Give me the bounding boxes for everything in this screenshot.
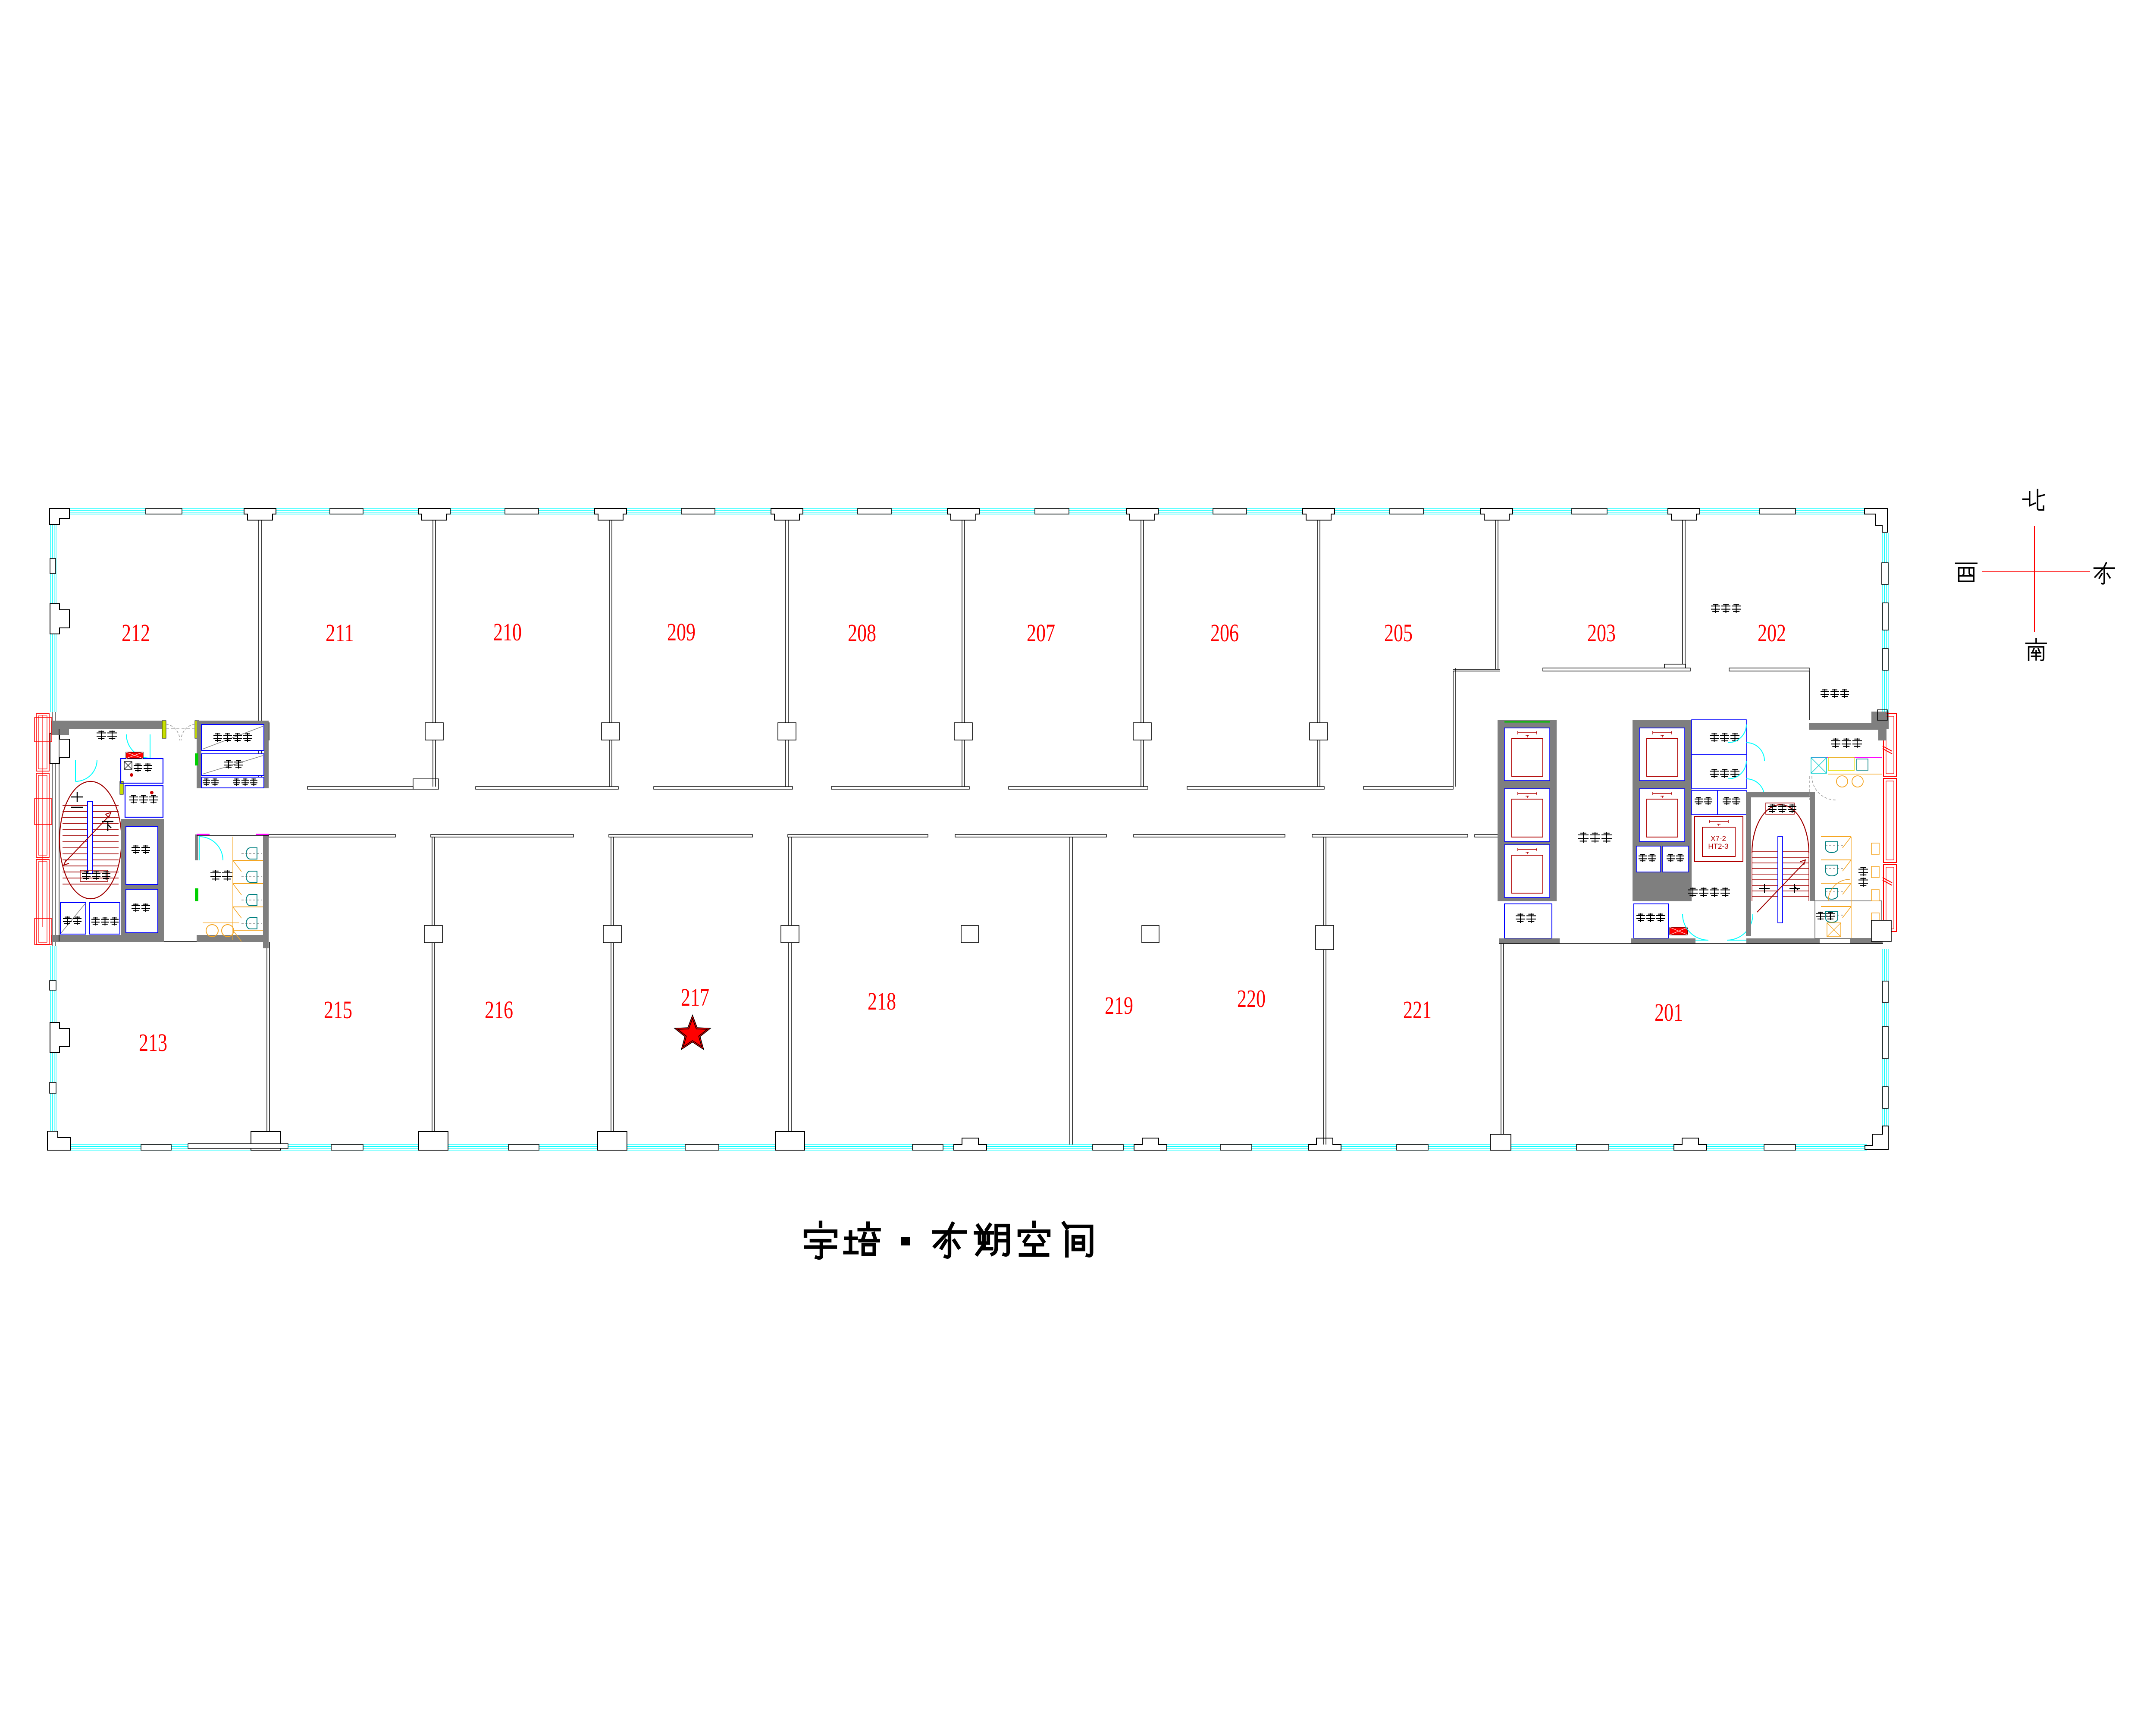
- svg-text:206: 206: [1210, 619, 1239, 647]
- svg-text:215: 215: [324, 996, 352, 1024]
- svg-text:211: 211: [326, 619, 354, 647]
- svg-text:219: 219: [1105, 991, 1133, 1019]
- svg-text:HT2-3: HT2-3: [1708, 842, 1728, 850]
- svg-text:207: 207: [1027, 619, 1055, 647]
- svg-text:213: 213: [139, 1029, 167, 1057]
- svg-text:210: 210: [493, 618, 522, 646]
- svg-text:201: 201: [1655, 998, 1683, 1026]
- svg-text:203: 203: [1587, 619, 1616, 647]
- svg-text:208: 208: [848, 619, 876, 647]
- svg-text:218: 218: [868, 987, 896, 1015]
- svg-text:209: 209: [667, 618, 696, 646]
- svg-text:X7-2: X7-2: [1711, 834, 1726, 843]
- svg-text:220: 220: [1237, 985, 1266, 1013]
- svg-text:202: 202: [1758, 619, 1786, 647]
- svg-text:221: 221: [1403, 996, 1432, 1024]
- svg-text:216: 216: [485, 996, 513, 1024]
- svg-text:217: 217: [681, 983, 709, 1011]
- svg-text:205: 205: [1384, 619, 1413, 647]
- svg-text:212: 212: [122, 619, 150, 647]
